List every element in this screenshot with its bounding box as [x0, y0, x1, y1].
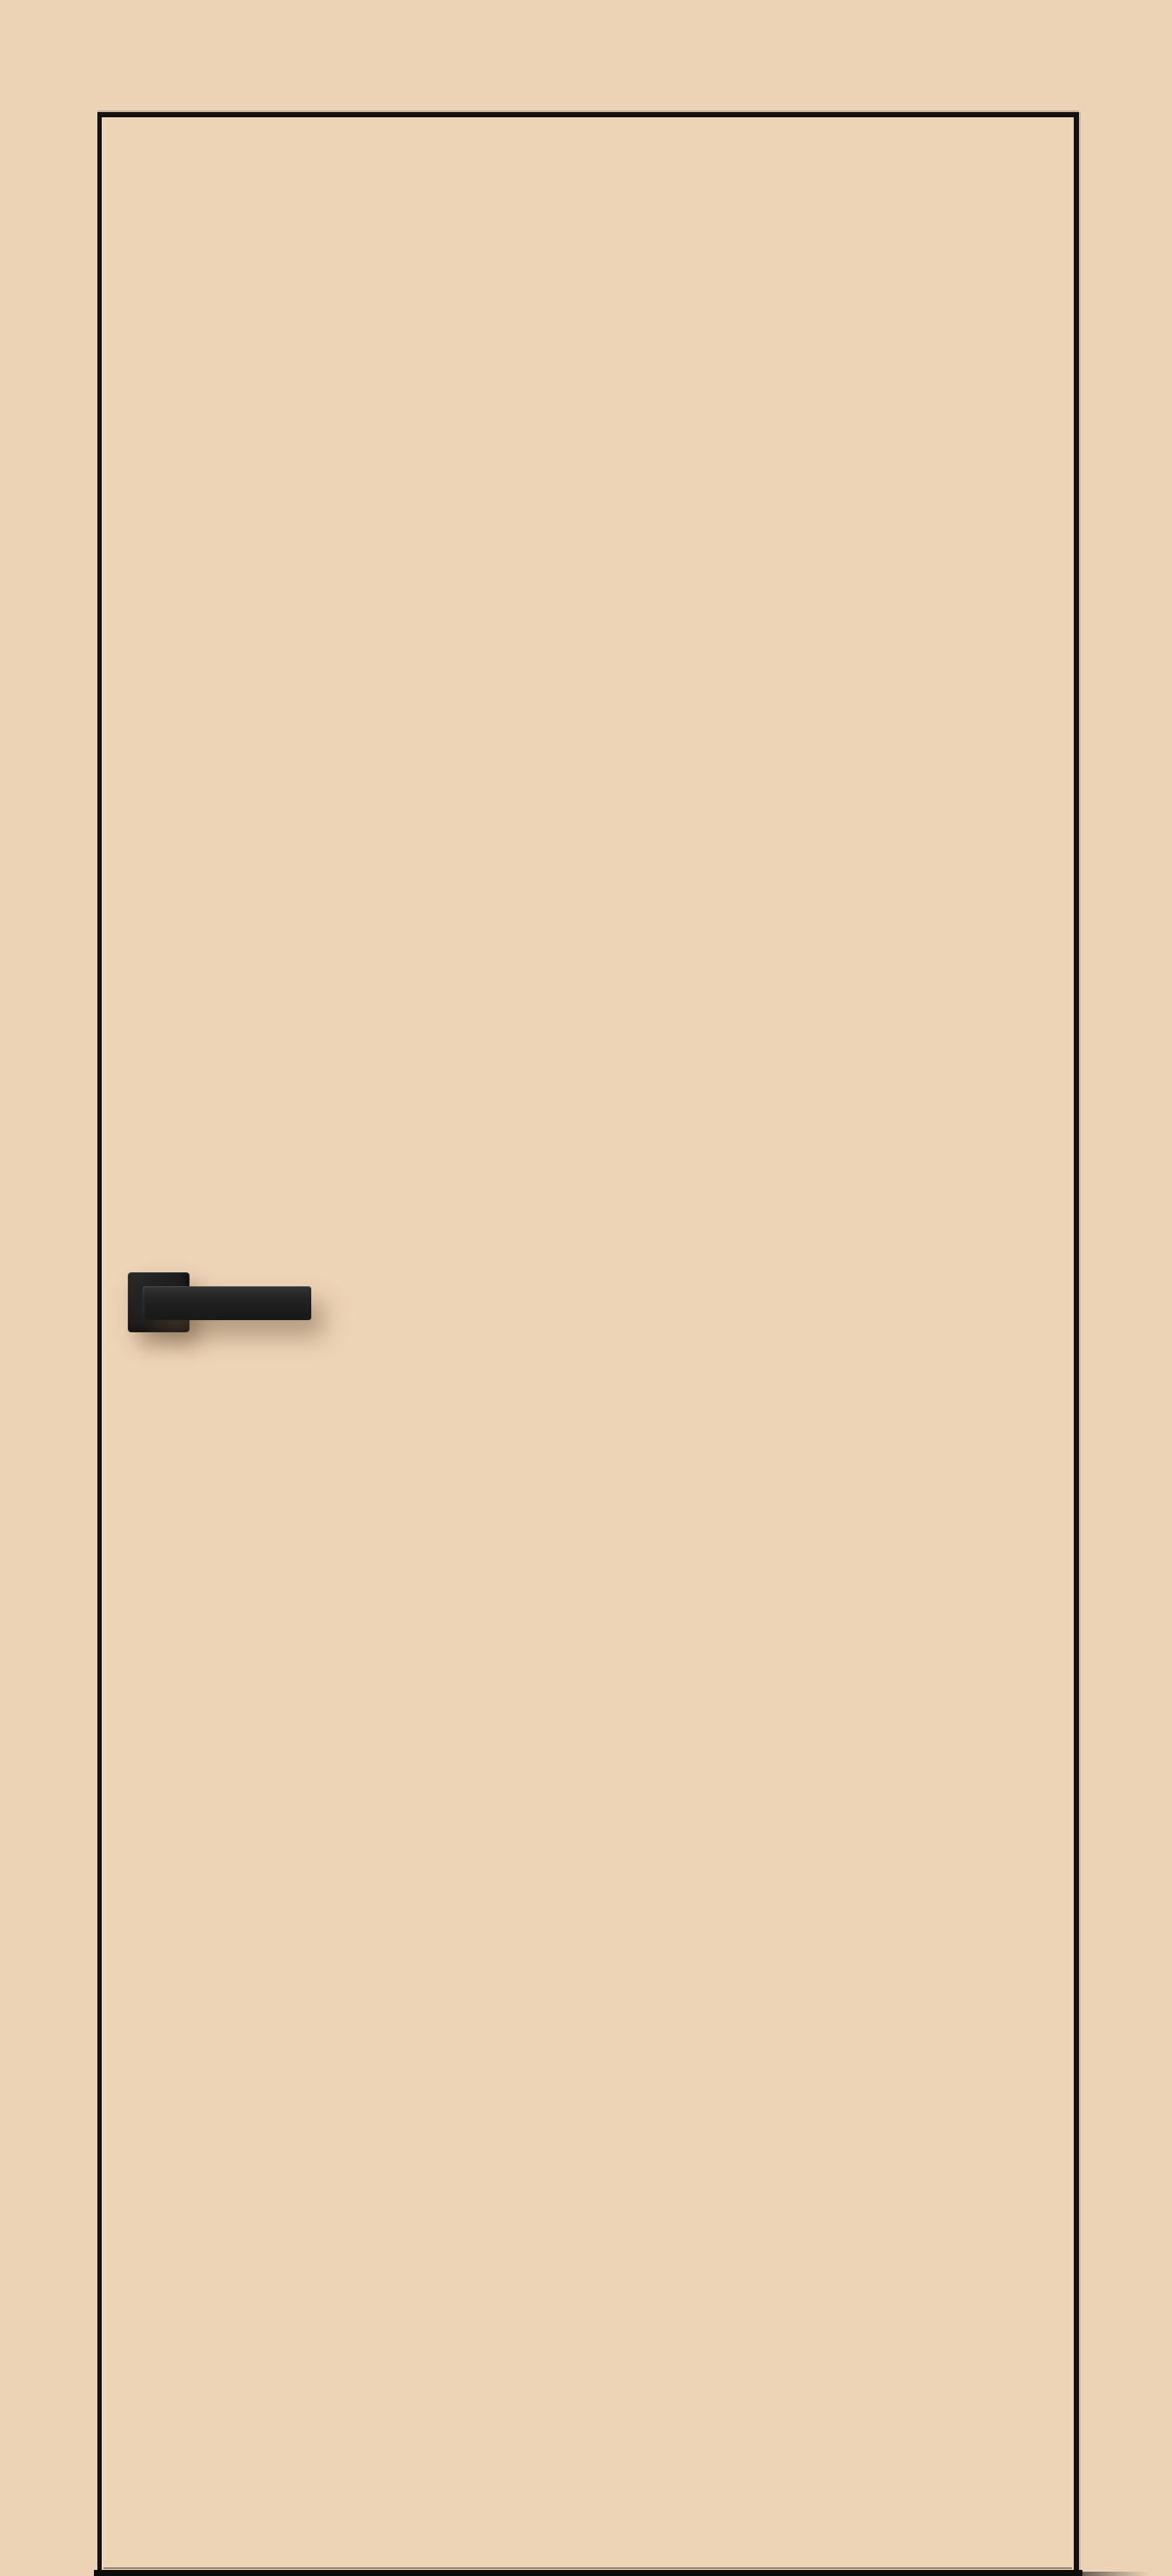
handle-lever	[143, 1286, 311, 1320]
backdrop	[0, 0, 1172, 2576]
door-bottom-gap	[94, 2570, 1082, 2576]
floor-shadow	[1082, 2572, 1150, 2576]
door-bottom-edge-line	[103, 2567, 1072, 2569]
door-handle	[128, 1272, 312, 1333]
door-panel	[97, 112, 1079, 2576]
